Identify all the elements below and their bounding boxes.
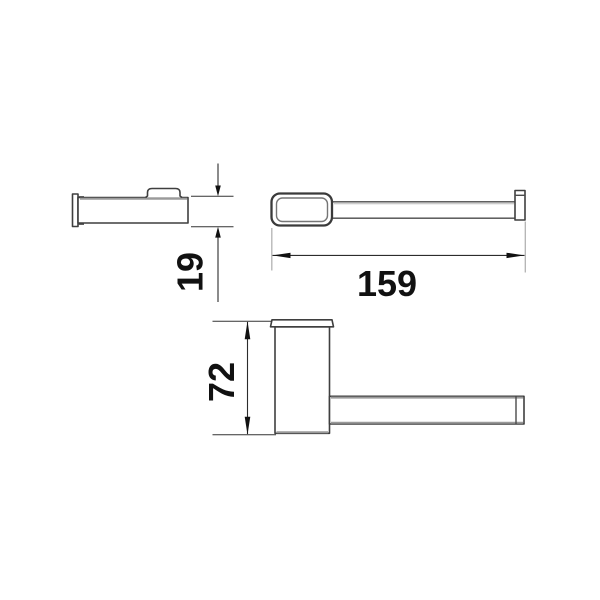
dimension-label-159: 159 [357,263,417,304]
mounting-post-bump-outline [146,189,183,198]
arrowhead-down-icon [215,186,221,197]
post-cap-outline [271,320,334,327]
mount-post-outline [275,327,330,434]
dimension-label-19: 19 [170,252,211,292]
arrowhead-up-icon [245,321,251,339]
arrowhead-down-icon [245,417,251,435]
side-view [73,189,189,227]
dimension-72: 72 [201,321,276,435]
dimension-19: 19 [170,164,234,303]
dimension-label-72: 72 [201,362,242,402]
dimension-159: 159 [272,222,526,305]
front-bar-outline [330,396,525,424]
arrowhead-left-icon [273,253,291,258]
front-view [271,320,525,434]
wall-flange-outline [73,194,79,227]
technical-drawing-canvas: 19 159 [0,0,600,600]
drawing-svg: 19 159 [0,0,600,600]
top-view [272,191,526,226]
bracket-arm-outline [78,198,188,224]
arrowhead-up-icon [215,227,221,238]
arrowhead-right-icon [507,253,525,258]
